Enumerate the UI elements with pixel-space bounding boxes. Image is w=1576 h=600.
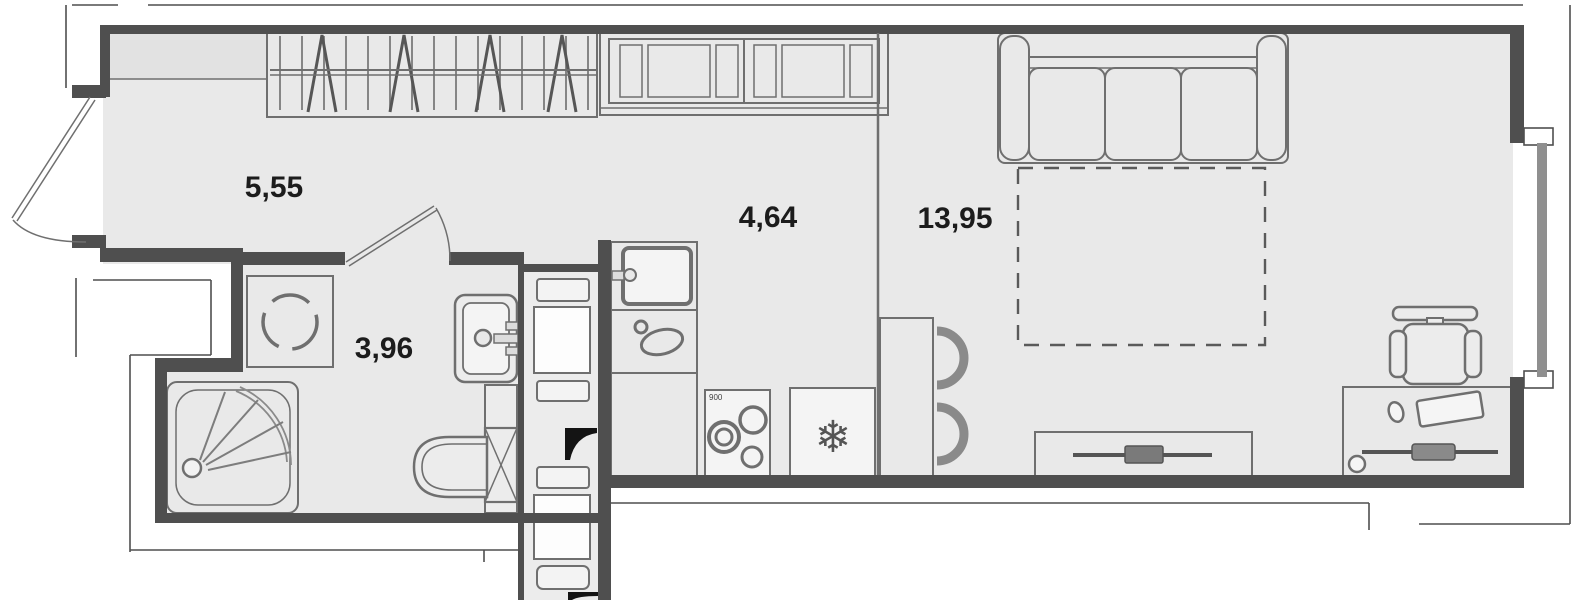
- fridge-snowflake-icon: ❄: [815, 412, 852, 463]
- washing-machine: [247, 276, 333, 367]
- window-glazing: [1537, 143, 1547, 377]
- office-chair-icon: [1390, 307, 1481, 384]
- faucet-icon: [612, 269, 636, 281]
- hallway-shelf: [106, 33, 267, 79]
- shower-drain-icon: [183, 459, 201, 477]
- stove: 900: [705, 390, 770, 477]
- ventilation-duct: [524, 272, 598, 600]
- floor-plan: 900 ❄: [0, 0, 1576, 600]
- shower: [167, 382, 298, 513]
- sofa: [998, 33, 1288, 163]
- toilet-bowl-icon: [414, 437, 487, 497]
- hallway-area-label: 5,55: [245, 171, 303, 204]
- cup-icon: [1349, 456, 1365, 472]
- entrance-door: [12, 97, 95, 242]
- window: [1524, 128, 1553, 388]
- kitchen-cabinets: [600, 33, 888, 115]
- stove-size-label: 900: [709, 393, 723, 402]
- door-jamb: [72, 85, 106, 98]
- bathroom-area-label: 3,96: [355, 332, 413, 365]
- living-area-label: 13,95: [917, 202, 992, 235]
- tv-stand: [1035, 432, 1252, 477]
- fridge: ❄: [790, 388, 875, 477]
- washbasin: [455, 295, 518, 382]
- desk: [1343, 387, 1515, 476]
- kitchen-counter: [611, 310, 697, 477]
- kitchen-area-label: 4,64: [739, 201, 798, 234]
- dining-table: [880, 318, 933, 477]
- kitchen-sink-unit: [611, 242, 697, 310]
